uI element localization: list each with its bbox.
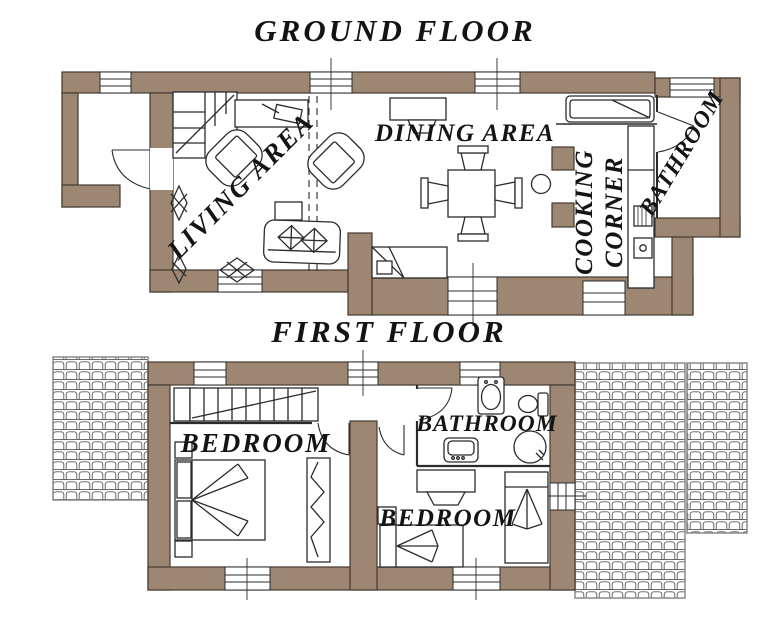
floor-plan-sheet: GROUND FLOOR FIRST FLOOR (0, 0, 784, 629)
window (348, 350, 378, 396)
wall-porch-bottom (62, 185, 120, 207)
window (310, 58, 352, 110)
ground-floor-plan: LIVING AREA DINING AREA COOKING CORNER B… (62, 58, 740, 326)
dining-table-set (421, 146, 522, 241)
wardrobe (307, 458, 330, 562)
wall-cooking-right (672, 233, 693, 315)
roof-panel-left (53, 357, 148, 500)
stove (634, 238, 652, 258)
stairs (174, 388, 318, 421)
first-floor-title: FIRST FLOOR (270, 314, 506, 349)
bathtub (566, 96, 654, 122)
ground-floor-title: GROUND FLOOR (254, 13, 535, 48)
side-table (532, 175, 551, 194)
wall-living-left (150, 93, 173, 292)
wall-center (350, 421, 377, 590)
coffee-table (275, 202, 302, 220)
cooking-corner-label: COOKING CORNER (571, 149, 628, 275)
bedroom-main-label: BEDROOM (180, 428, 332, 458)
dining-table (448, 170, 495, 217)
window (583, 281, 625, 315)
wall-top (62, 72, 655, 93)
dining-chair (458, 217, 488, 241)
dining-chair (495, 178, 522, 208)
nightstand (175, 541, 192, 557)
double-bed (175, 460, 265, 540)
svg-text:COOKING: COOKING (571, 149, 598, 275)
entry-door (112, 148, 173, 190)
dresser (417, 470, 475, 505)
dining-area-label: DINING AREA (374, 120, 555, 147)
floor-plan-drawing: GROUND FLOOR FIRST FLOOR (0, 0, 784, 629)
washbasin-unit (444, 438, 478, 462)
window (475, 58, 520, 110)
armchair (302, 127, 370, 195)
dining-chair (421, 178, 448, 208)
wall-left (148, 385, 170, 590)
wall-pier-center (348, 233, 372, 315)
daybed (372, 247, 447, 278)
first-floor-plan: BEDROOM BATHROOM BEDROOM (53, 350, 747, 600)
roof-panel-right-small (687, 363, 747, 533)
bathroom-ff-label: BATHROOM (415, 411, 557, 437)
bathroom-sink (478, 377, 504, 414)
bedroom-second-label: BEDROOM (379, 505, 517, 532)
window (225, 558, 270, 600)
window (100, 72, 131, 93)
svg-text:CORNER: CORNER (601, 156, 628, 268)
roof-panel-right-large (575, 363, 685, 598)
window (194, 362, 226, 385)
sofa (263, 220, 340, 265)
dining-chair (458, 146, 488, 170)
bedroom-door (379, 425, 404, 455)
